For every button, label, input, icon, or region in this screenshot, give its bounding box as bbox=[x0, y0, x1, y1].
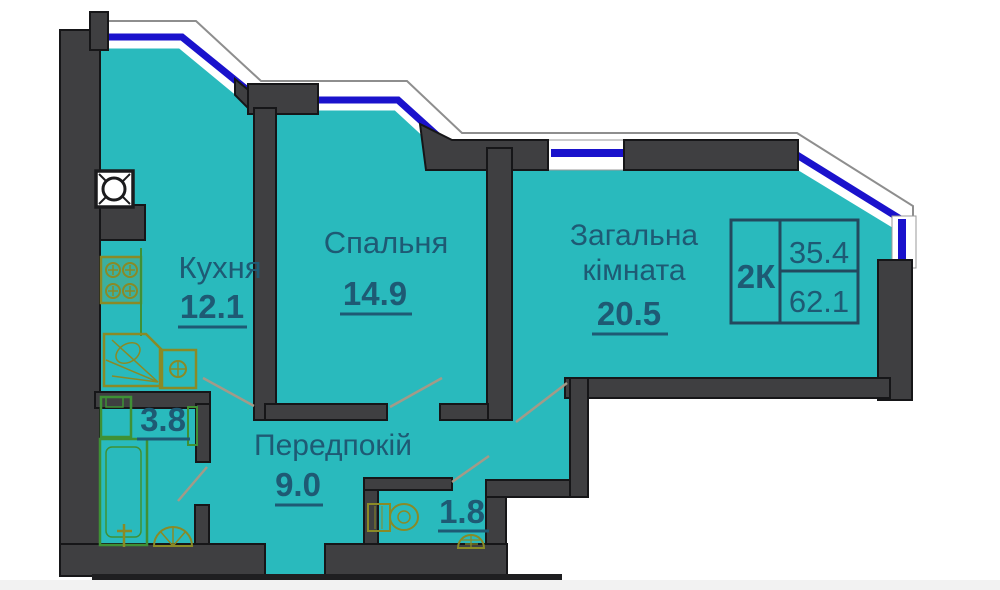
wall-bedroom-living bbox=[487, 148, 512, 420]
wall-left bbox=[60, 30, 100, 575]
ventilation-shaft-icon bbox=[96, 171, 133, 207]
hall-label: Передпокій bbox=[254, 429, 412, 462]
window-living-top-glass bbox=[551, 149, 623, 157]
living-label-line1: Загальна bbox=[570, 219, 698, 252]
bathroom-area: 3.8 bbox=[140, 401, 186, 438]
wall-vent-niche bbox=[100, 205, 145, 240]
wall-bathroom-right-stub bbox=[195, 505, 209, 547]
window-living-right-glass bbox=[898, 219, 906, 266]
floor-plan-page: Кухня 12.1 Спальня 14.9 Загальна кімната… bbox=[0, 0, 1000, 590]
wall-wc-top bbox=[364, 478, 452, 490]
wall-bedroom-bottom-left bbox=[265, 404, 387, 420]
wc-area: 1.8 bbox=[439, 493, 485, 530]
wall-chimney bbox=[90, 12, 108, 50]
bedroom-area: 14.9 bbox=[343, 275, 407, 312]
bedroom-label: Спальня bbox=[324, 225, 449, 260]
kitchen-area: 12.1 bbox=[180, 288, 244, 325]
total-area: 62.1 bbox=[789, 284, 849, 319]
page-bottom-margin bbox=[0, 580, 1000, 590]
kitchen-label: Кухня bbox=[179, 250, 262, 285]
gas-stove-icon bbox=[101, 257, 141, 303]
living-area-total: 35.4 bbox=[789, 235, 849, 270]
living-label-line2: кімната bbox=[582, 254, 685, 287]
wall-bottom-left bbox=[60, 544, 265, 576]
living-area: 20.5 bbox=[597, 295, 661, 332]
wall-hall-right bbox=[570, 378, 588, 497]
wall-living-top bbox=[624, 140, 798, 170]
apartment-type: 2К bbox=[737, 258, 776, 295]
wall-living-bottom bbox=[565, 378, 890, 398]
wall-bedroom-bottom-right bbox=[440, 404, 488, 420]
floor-plan: Кухня 12.1 Спальня 14.9 Загальна кімната… bbox=[0, 0, 1000, 590]
wall-bathroom-right-upper bbox=[196, 404, 210, 462]
hall-area: 9.0 bbox=[275, 466, 321, 503]
